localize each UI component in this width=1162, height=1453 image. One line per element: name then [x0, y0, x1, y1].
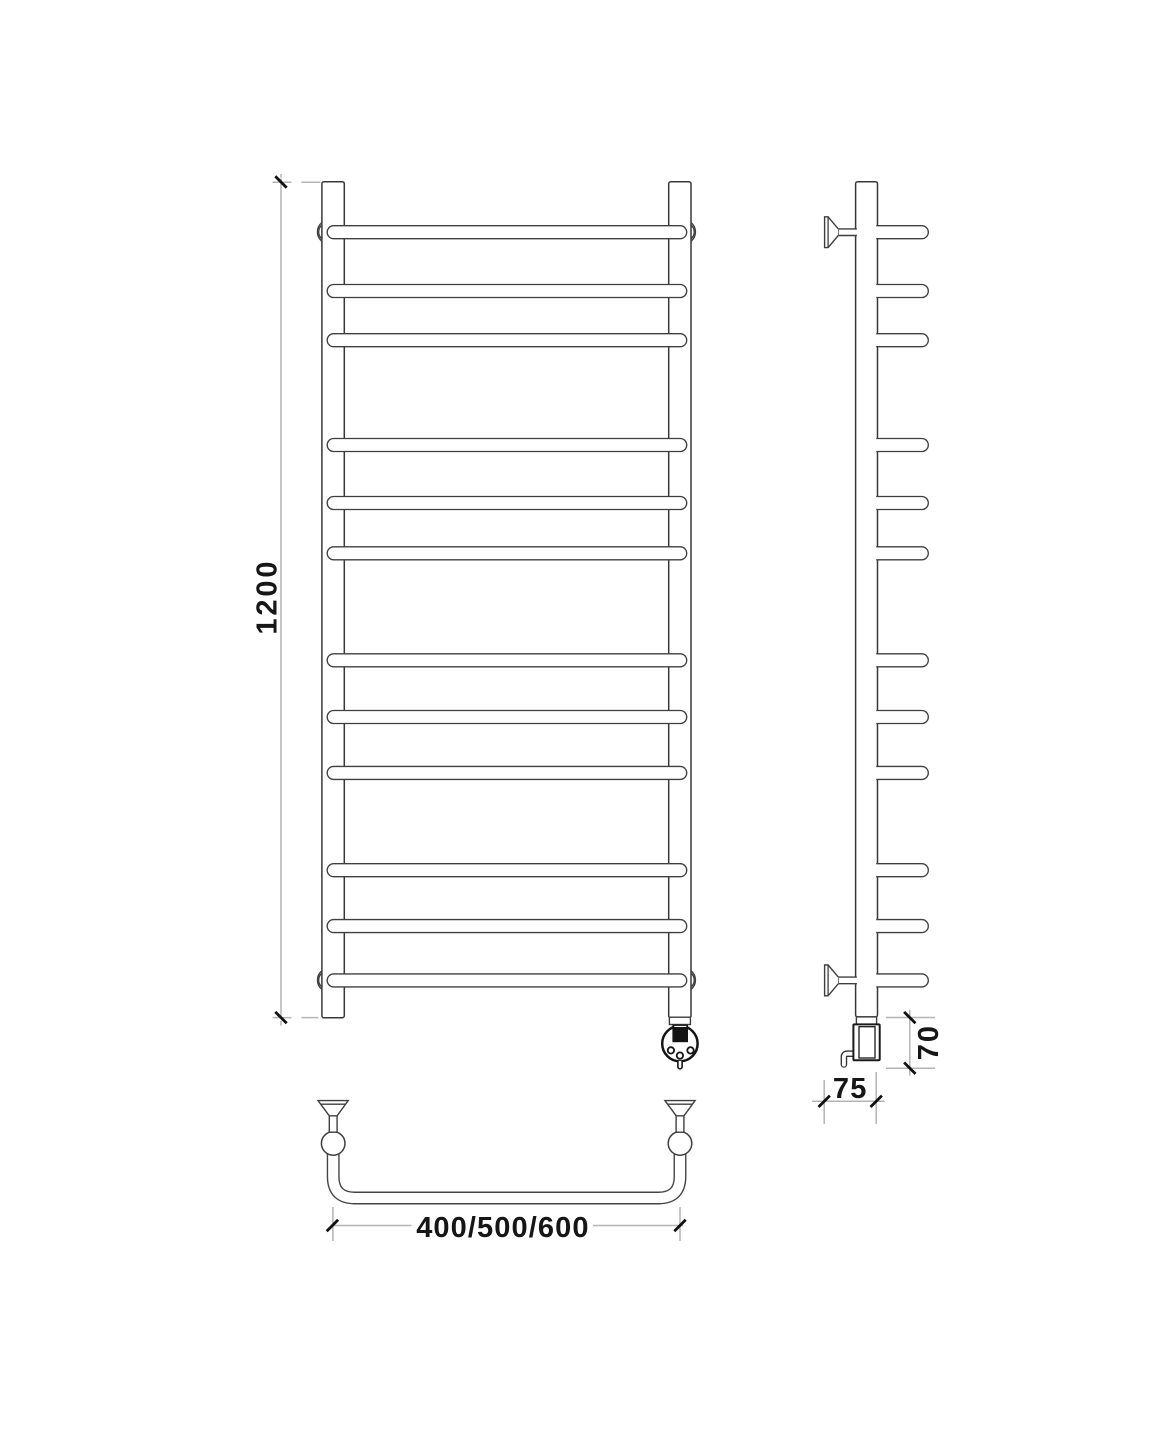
svg-text:75: 75: [833, 1073, 868, 1105]
svg-text:1200: 1200: [251, 559, 283, 635]
svg-text:70: 70: [913, 1024, 945, 1060]
svg-text:400/500/600: 400/500/600: [416, 1212, 589, 1244]
